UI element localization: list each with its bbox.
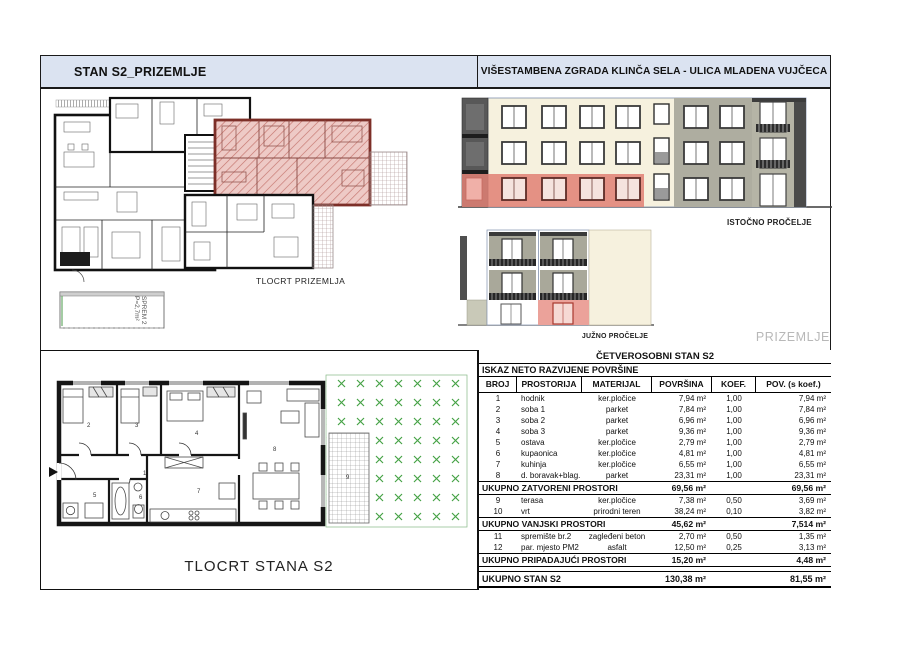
column-header: PROSTORIJA <box>517 377 582 393</box>
table-row-cell: soba 1 <box>517 404 582 415</box>
table-row-cell: 1 <box>479 393 517 404</box>
table-row-cell: 1,00 <box>712 404 756 415</box>
table-row-cell: 6,55 m² <box>652 459 712 470</box>
table-row-cell: 12 <box>479 542 517 553</box>
apartment-plan-box: 1 2 3 4 5 6 7 8 9 TLOCRT STANA S2 <box>40 350 478 590</box>
total-label: UKUPNO PRIPADAJUĆI PROSTORI <box>479 553 652 567</box>
table-row-cell: d. boravak+blag. <box>517 470 582 481</box>
kitchen-block <box>60 252 90 266</box>
south-facade <box>458 226 658 332</box>
east-facade-label: ISTOČNO PROČELJE <box>727 218 837 227</box>
table-row-cell: 0,50 <box>712 495 756 506</box>
table-row-cell: 6,96 m² <box>756 415 831 426</box>
table-row-cell: zagleđeni beton <box>582 531 652 542</box>
apartment-s2-highlight <box>215 120 370 205</box>
table-row-cell: 7,94 m² <box>652 393 712 404</box>
table-row-cell: 4,81 m² <box>756 448 831 459</box>
entrance-arrow <box>49 467 58 477</box>
table-row-cell: ker.pločice <box>582 459 652 470</box>
side-dark-strip <box>460 236 467 300</box>
table-row-cell: parket <box>582 415 652 426</box>
table-row-cell: 23,31 m² <box>652 470 712 481</box>
table-row-cell: 1,00 <box>712 459 756 470</box>
table-row-cell: hodnik <box>517 393 582 404</box>
table-row-cell: 4,81 m² <box>652 448 712 459</box>
table-row-cell: ker.pločice <box>582 495 652 506</box>
storage-label: SPREM 2 <box>140 296 147 325</box>
table-row-cell: kupaonica <box>517 448 582 459</box>
table-row-cell: terasa <box>517 495 582 506</box>
title-bar: STAN S2_PRIZEMLJE VIŠESTAMBENA ZGRADA KL… <box>40 55 831 89</box>
table-row-cell: 2,70 m² <box>652 531 712 542</box>
ground-floor-plan <box>42 92 444 282</box>
table-row-cell: ostava <box>517 437 582 448</box>
column-header: POVRŠINA <box>652 377 712 393</box>
table-row-cell: 1,00 <box>712 437 756 448</box>
table-row-cell: 2,79 m² <box>652 437 712 448</box>
table-row-cell: 10 <box>479 506 517 517</box>
table-row-cell: spremište br.2 <box>517 531 582 542</box>
cream-panel <box>589 230 651 325</box>
floor-tag: PRIZEMLJE <box>752 330 830 344</box>
table-row-cell: soba 2 <box>517 415 582 426</box>
balcony-windows <box>756 102 790 206</box>
table-row-cell: parket <box>582 470 652 481</box>
table-row-cell: 0,10 <box>712 506 756 517</box>
table-row-cell: vrt <box>517 506 582 517</box>
storage-wall <box>60 292 164 296</box>
table-row-cell: 7,84 m² <box>756 404 831 415</box>
table-row-cell: 1,35 m² <box>756 531 831 542</box>
table-row-cell: asfalt <box>582 542 652 553</box>
grand-total-area: 130,38 m² <box>652 571 712 588</box>
table-subtitle: ISKAZ NETO RAZVIJENE POVRŠINE <box>479 364 831 377</box>
total-area: 15,20 m² <box>652 553 712 567</box>
table-row-cell: 6,55 m² <box>756 459 831 470</box>
east-facade <box>456 90 834 216</box>
table-row-cell: soba 3 <box>517 426 582 437</box>
table-row-cell: prirodni teren <box>582 506 652 517</box>
table-row-cell: 1,00 <box>712 470 756 481</box>
storage-plan: SPREM 2 P=2,7m² <box>56 286 176 334</box>
table-row-cell: 3,69 m² <box>756 495 831 506</box>
table-row-cell: 0,50 <box>712 531 756 542</box>
terrace-hatch-right <box>370 152 407 205</box>
table-row-cell: 1,00 <box>712 393 756 404</box>
ground-plan-label: TLOCRT PRIZEMLJA <box>256 276 416 286</box>
total-spacer <box>712 517 756 531</box>
stair-core <box>185 135 217 191</box>
table-row-cell: 7,94 m² <box>756 393 831 404</box>
table-row-cell: 23,31 m² <box>756 470 831 481</box>
table-row-cell: 1,00 <box>712 426 756 437</box>
grand-total-spacer <box>712 571 756 588</box>
sheet-title: STAN S2_PRIZEMLJE <box>41 56 478 87</box>
column-header: BROJ <box>479 377 517 393</box>
table-row-cell: 1,00 <box>712 415 756 426</box>
ground-floor <box>501 300 589 325</box>
table-row-cell: 6 <box>479 448 517 459</box>
total-area: 69,56 m² <box>652 481 712 495</box>
total-spacer <box>712 553 756 567</box>
table-row-cell: 1,00 <box>712 448 756 459</box>
column-header: POV. (s koef.) <box>756 377 831 393</box>
drawing-sheet: STAN S2_PRIZEMLJE VIŠESTAMBENA ZGRADA KL… <box>0 0 919 649</box>
table-row-cell: 7,84 m² <box>652 404 712 415</box>
table-row-cell: 11 <box>479 531 517 542</box>
south-facade-label: JUŽNO PROČELJE <box>560 333 670 340</box>
table-row-cell: 2 <box>479 404 517 415</box>
grand-total-label: UKUPNO STAN S2 <box>479 571 652 588</box>
table-row-cell: 2,79 m² <box>756 437 831 448</box>
table-row-cell: 38,24 m² <box>652 506 712 517</box>
bottom-middle-apartment <box>185 195 313 268</box>
grand-total-area-coef: 81,55 m² <box>756 571 831 588</box>
table-title: ČETVEROSOBNI STAN S2 <box>479 350 831 364</box>
table-row-cell: parket <box>582 426 652 437</box>
total-area-coef: 4,48 m² <box>756 553 831 567</box>
apartment-plan-label: TLOCRT STANA S2 <box>41 558 477 575</box>
table-row-cell: 3,82 m² <box>756 506 831 517</box>
total-area-coef: 7,514 m² <box>756 517 831 531</box>
table-row-cell: 0,25 <box>712 542 756 553</box>
apartment-s2-plan: 1 2 3 4 5 6 7 8 9 <box>49 357 473 543</box>
total-area-coef: 69,56 m² <box>756 481 831 495</box>
storage-area-label: P=2,7m² <box>133 296 140 322</box>
table-row-cell: 4 <box>479 426 517 437</box>
column-header: MATERIJAL <box>582 377 652 393</box>
table-row-cell: 5 <box>479 437 517 448</box>
low-wall-left <box>467 300 487 325</box>
area-table: ČETVEROSOBNI STAN S2ISKAZ NETO RAZVIJENE… <box>478 350 831 590</box>
table-row-cell: 8 <box>479 470 517 481</box>
table-row-cell: ker.pločice <box>582 448 652 459</box>
table-row-cell: 3 <box>479 415 517 426</box>
table-row-cell: 3,13 m² <box>756 542 831 553</box>
table-row-cell: 12,50 m² <box>652 542 712 553</box>
total-spacer <box>712 481 756 495</box>
table-row-cell: par. mjesto PM2 <box>517 542 582 553</box>
project-title: VIŠESTAMBENA ZGRADA KLINČA SELA - ULICA … <box>478 56 830 87</box>
table-row-cell: ker.pločice <box>582 393 652 404</box>
total-label: UKUPNO ZATVORENI PROSTORI <box>479 481 652 495</box>
table-row-cell: 9,36 m² <box>756 426 831 437</box>
facade-dark-edge <box>794 98 806 207</box>
table-row-cell: kuhinja <box>517 459 582 470</box>
table-row-cell: ker.pločice <box>582 437 652 448</box>
total-area: 45,62 m² <box>652 517 712 531</box>
table-row-cell: 7 <box>479 459 517 470</box>
terrace-hatch-bottom <box>313 205 333 268</box>
total-label: UKUPNO VANJSKI PROSTORI <box>479 517 652 531</box>
table-row-cell: 9,36 m² <box>652 426 712 437</box>
table-row-cell: 7,38 m² <box>652 495 712 506</box>
table-row-cell: parket <box>582 404 652 415</box>
table-row-cell: 6,96 m² <box>652 415 712 426</box>
stair-windows <box>654 104 669 200</box>
table-row-cell: 9 <box>479 495 517 506</box>
column-header: KOEF. <box>712 377 756 393</box>
